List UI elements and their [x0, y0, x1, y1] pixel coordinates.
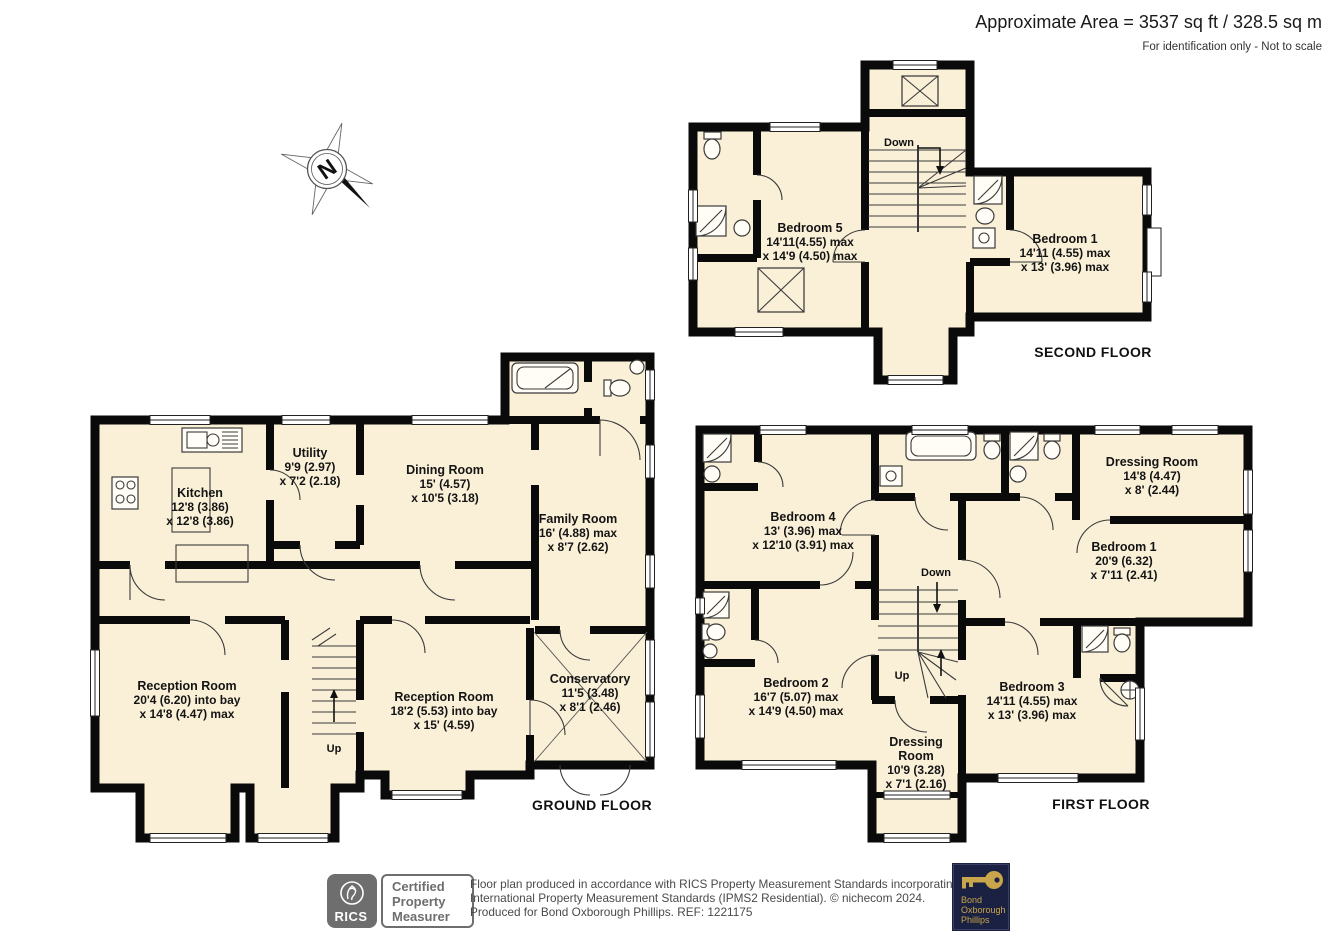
rics-crest-icon: RICS: [327, 874, 377, 928]
svg-text:x 10'5 (3.18): x 10'5 (3.18): [411, 491, 479, 505]
svg-text:Bedroom 1: Bedroom 1: [1091, 540, 1156, 554]
svg-text:Bedroom 1: Bedroom 1: [1032, 232, 1097, 246]
brand-key-icon: Bond Oxborough Phillips: [952, 863, 1010, 931]
bond-oxborough-phillips-logo: Bond Oxborough Phillips: [952, 863, 1010, 931]
svg-text:x 8'1 (2.46): x 8'1 (2.46): [560, 700, 621, 714]
toilet-icon: [1044, 434, 1060, 459]
svg-text:x 15' (4.59): x 15' (4.59): [414, 718, 475, 732]
svg-text:Conservatory: Conservatory: [550, 672, 631, 686]
certified-property-measurer-badge: Certified Property Measurer: [381, 874, 474, 928]
sink-icon: [703, 644, 717, 658]
svg-text:Bedroom 2: Bedroom 2: [763, 676, 828, 690]
svg-text:11'5 (3.48): 11'5 (3.48): [562, 686, 619, 700]
second-floor-title: SECOND FLOOR: [1034, 344, 1152, 360]
cert-line-1: Certified: [392, 879, 472, 894]
approximate-area-text: Approximate Area = 3537 sq ft / 328.5 sq…: [975, 12, 1322, 33]
ground-floor-title: GROUND FLOOR: [532, 797, 652, 813]
svg-text:Utility: Utility: [293, 446, 328, 460]
sink-icon: [704, 466, 720, 482]
brand-line-2: Oxborough: [961, 905, 1006, 915]
svg-text:16' (4.88) max: 16' (4.88) max: [539, 526, 618, 540]
svg-text:15' (4.57): 15' (4.57): [420, 477, 471, 491]
floor-plan-ground-floor: Up: [86, 348, 690, 848]
svg-text:Dressing Room: Dressing Room: [1106, 455, 1198, 469]
svg-text:Reception Room: Reception Room: [394, 690, 493, 704]
footer-disclaimer: Floor plan produced in accordance with R…: [470, 877, 959, 919]
rics-wordmark: RICS: [334, 909, 367, 924]
stairs-up-label: Up: [895, 670, 910, 682]
brand-line-1: Bond: [961, 895, 982, 905]
toilet-icon: [704, 132, 721, 159]
svg-text:20'9 (6.32): 20'9 (6.32): [1095, 554, 1153, 568]
ground-floor-outline: [95, 357, 650, 838]
not-to-scale-note: For identification only - Not to scale: [1142, 41, 1322, 53]
svg-text:x 8'7 (2.62): x 8'7 (2.62): [548, 540, 609, 554]
toilet-icon: [1114, 628, 1130, 652]
svg-text:Kitchen: Kitchen: [177, 486, 223, 500]
toilet-icon: [604, 380, 630, 396]
floorplan-page: Approximate Area = 3537 sq ft / 328.5 sq…: [0, 0, 1338, 942]
bathtub-icon: [906, 432, 976, 460]
kitchen-sink-icon: [182, 428, 242, 452]
svg-text:Reception Room: Reception Room: [137, 679, 236, 693]
svg-text:13' (3.96) max: 13' (3.96) max: [764, 524, 843, 538]
svg-text:x 14'9 (4.50) max: x 14'9 (4.50) max: [749, 704, 844, 718]
window-seat: [1147, 228, 1161, 276]
hob-icon: [112, 477, 138, 509]
sink-icon: [734, 220, 750, 236]
room-label-bedroom1-second: Bedroom 1 14'11 (4.55) max x 13' (3.96) …: [1020, 232, 1111, 274]
svg-text:x 14'8 (4.47) max: x 14'8 (4.47) max: [140, 707, 235, 721]
svg-text:Room: Room: [898, 749, 933, 763]
shower-icon: [703, 434, 731, 462]
shower-icon: [1082, 626, 1108, 652]
brand-line-3: Phillips: [961, 915, 990, 925]
svg-text:x 12'8 (3.86): x 12'8 (3.86): [166, 514, 234, 528]
shower-icon: [974, 176, 1002, 204]
svg-text:9'9 (2.97): 9'9 (2.97): [285, 460, 336, 474]
sink-icon: [880, 466, 902, 486]
room-label-family-room: Family Room 16' (4.88) max x 8'7 (2.62): [539, 512, 618, 554]
toilet-icon: [984, 434, 1000, 459]
svg-text:x 8' (2.44): x 8' (2.44): [1125, 483, 1179, 497]
svg-text:Bedroom 3: Bedroom 3: [999, 680, 1064, 694]
compass-rose: N: [278, 114, 382, 222]
svg-text:x 7'11 (2.41): x 7'11 (2.41): [1091, 568, 1158, 582]
svg-text:x 12'10 (3.91) max: x 12'10 (3.91) max: [752, 538, 854, 552]
room-label-dressing-room-2: Dressing Room 10'9 (3.28) x 7'1 (2.16): [886, 735, 947, 791]
toilet-icon: [702, 624, 725, 640]
shower-icon: [696, 206, 726, 236]
sink-icon: [1010, 466, 1026, 482]
sink-icon: [630, 360, 644, 374]
svg-text:x 7'2 (2.18): x 7'2 (2.18): [280, 474, 341, 488]
stairs-down-label: Down: [921, 567, 951, 579]
rics-logo: RICS: [327, 874, 377, 928]
bathtub-icon: [512, 363, 578, 393]
svg-text:Bedroom 5: Bedroom 5: [777, 221, 842, 235]
svg-text:x 13' (3.96) max: x 13' (3.96) max: [988, 708, 1077, 722]
room-label-bedroom3: Bedroom 3 14'11 (4.55) max x 13' (3.96) …: [987, 680, 1078, 722]
svg-text:Dining Room: Dining Room: [406, 463, 484, 477]
svg-text:Family Room: Family Room: [539, 512, 618, 526]
svg-text:14'11 (4.55) max: 14'11 (4.55) max: [987, 694, 1078, 708]
disclaimer-line-1: Floor plan produced in accordance with R…: [470, 877, 959, 891]
svg-text:12'8 (3.86): 12'8 (3.86): [171, 500, 229, 514]
svg-text:14'8 (4.47): 14'8 (4.47): [1123, 469, 1181, 483]
svg-text:10'9 (3.28): 10'9 (3.28): [887, 763, 945, 777]
floor-plan-first-floor: Down Up: [688, 408, 1266, 852]
svg-text:18'2 (5.53) into bay: 18'2 (5.53) into bay: [391, 704, 498, 718]
stairs-down-label: Down: [884, 137, 914, 149]
room-label-bedroom1-first: Bedroom 1 20'9 (6.32) x 7'11 (2.41): [1091, 540, 1158, 582]
svg-text:14'11 (4.55) max: 14'11 (4.55) max: [1020, 246, 1111, 260]
svg-text:x 7'1 (2.16): x 7'1 (2.16): [886, 777, 947, 791]
room-label-reception-room-1: Reception Room 20'4 (6.20) into bay x 14…: [134, 679, 241, 721]
svg-text:x 14'9 (4.50) max: x 14'9 (4.50) max: [763, 249, 858, 263]
svg-text:14'11(4.55) max: 14'11(4.55) max: [766, 235, 854, 249]
sink-icon: [976, 208, 994, 224]
toilet-icon: [973, 228, 995, 248]
shower-icon: [1010, 432, 1038, 460]
svg-text:16'7 (5.07) max: 16'7 (5.07) max: [754, 690, 839, 704]
svg-text:20'4 (6.20) into bay: 20'4 (6.20) into bay: [134, 693, 241, 707]
floor-plan-second-floor: Down: [685, 53, 1180, 393]
svg-text:x 13' (3.96) max: x 13' (3.96) max: [1021, 260, 1110, 274]
svg-text:Bedroom 4: Bedroom 4: [770, 510, 835, 524]
cert-line-3: Measurer: [392, 909, 472, 924]
shower-icon: [703, 592, 729, 618]
first-floor-title: FIRST FLOOR: [1052, 796, 1150, 812]
svg-text:Dressing: Dressing: [889, 735, 943, 749]
stairs-up-label: Up: [327, 743, 342, 755]
disclaimer-line-2: International Property Measurement Stand…: [470, 891, 959, 905]
disclaimer-line-3: Produced for Bond Oxborough Phillips. RE…: [470, 905, 959, 919]
room-label-conservatory: Conservatory 11'5 (3.48) x 8'1 (2.46): [550, 672, 631, 714]
cert-line-2: Property: [392, 894, 472, 909]
